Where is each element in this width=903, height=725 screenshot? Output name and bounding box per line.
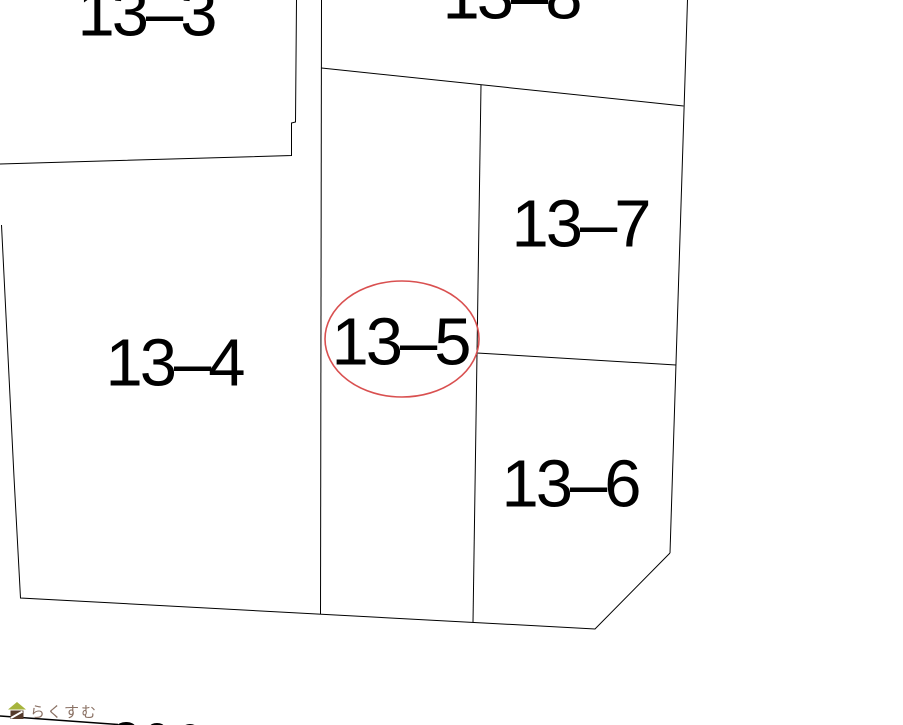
logo-text: らくすむ — [30, 704, 98, 721]
parcel-label-13-4: 13–4 — [105, 330, 242, 397]
parcel-label-13-8: 13–8 — [442, 0, 579, 30]
boundary-right-edge — [670, 0, 688, 553]
parcel-label-13-5: 13–5 — [331, 309, 468, 376]
parcel-label-13-3: 13–3 — [77, 0, 214, 47]
house-icon — [8, 702, 26, 720]
boundary-13-7-13-6-divider — [477, 353, 676, 365]
rakusumu-logo[interactable]: らくすむ — [8, 702, 98, 722]
parcel-label-13-7: 13–7 — [511, 191, 648, 258]
parcel-label-13-6: 13–6 — [501, 451, 638, 518]
cadastral-map: 13–3 13–8 13–7 13–5 13–4 13–6 らくすむ — [0, 0, 903, 725]
boundary-bottom-and-left — [2, 225, 671, 629]
boundary-parcel-13-8-bottom — [322, 68, 684, 106]
boundary-corridor-left — [321, 0, 322, 615]
